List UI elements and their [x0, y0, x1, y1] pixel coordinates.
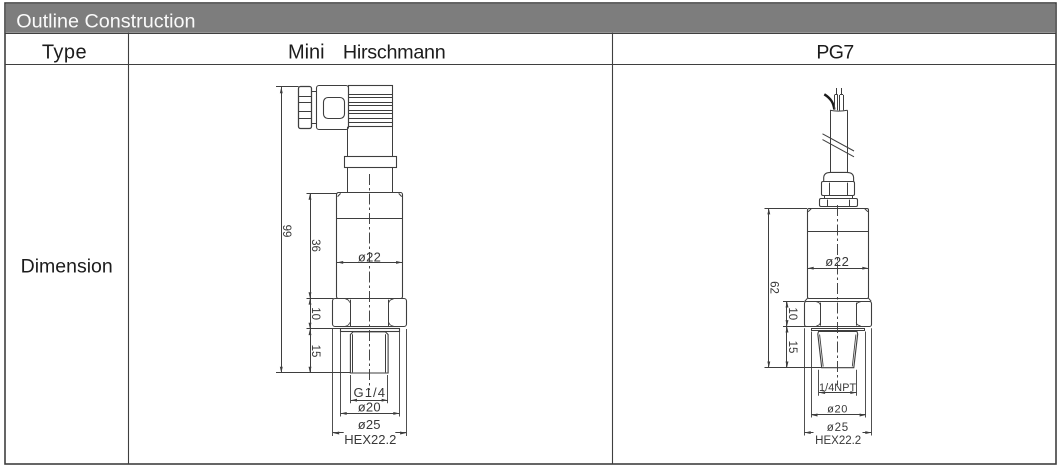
svg-text:PG7: PG7	[816, 41, 853, 63]
svg-text:ø20: ø20	[827, 403, 848, 415]
svg-text:HEX22.2: HEX22.2	[815, 435, 861, 447]
svg-text:Dimension: Dimension	[21, 256, 113, 278]
svg-text:ø22: ø22	[825, 254, 849, 269]
svg-text:Hirschmann: Hirschmann	[343, 41, 446, 63]
svg-text:ø25: ø25	[827, 422, 849, 434]
svg-text:ø22: ø22	[358, 249, 381, 264]
svg-text:99: 99	[280, 225, 292, 238]
svg-text:36: 36	[309, 239, 321, 252]
svg-text:Mini: Mini	[288, 41, 325, 63]
svg-text:10: 10	[786, 307, 798, 320]
svg-text:15: 15	[309, 345, 321, 358]
svg-text:G1/4: G1/4	[354, 385, 387, 400]
svg-text:ø25: ø25	[358, 417, 381, 432]
svg-text:ø20: ø20	[358, 399, 381, 414]
svg-text:1/4NPT: 1/4NPT	[819, 382, 857, 394]
svg-text:Type: Type	[42, 41, 87, 63]
svg-text:Outline Construction: Outline Construction	[16, 11, 195, 33]
svg-text:10: 10	[309, 307, 321, 320]
svg-text:15: 15	[786, 341, 798, 354]
svg-text:62: 62	[768, 281, 780, 294]
svg-text:HEX22.2: HEX22.2	[344, 432, 396, 447]
